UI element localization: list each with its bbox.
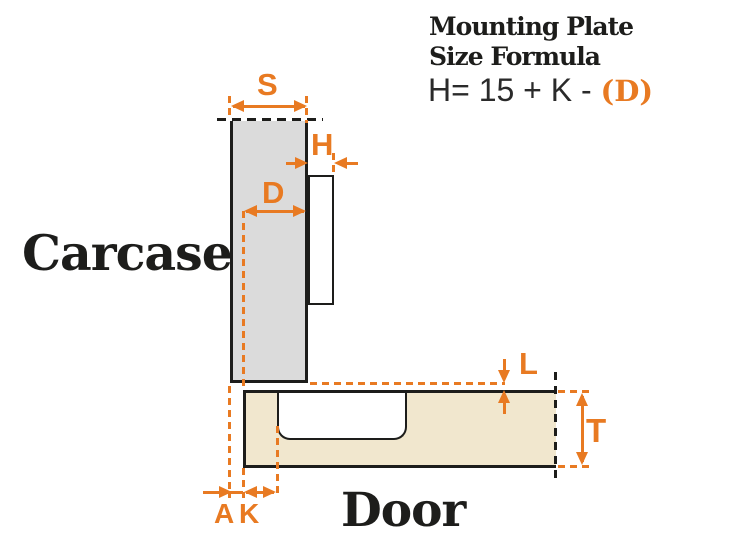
dim-label-d: D [262, 175, 284, 211]
s-arrowhead-right [294, 100, 307, 112]
l-arrowhead-down [498, 370, 510, 383]
ref-tick-door-bottom [558, 465, 591, 468]
formula: H= 15 + K - (D) [428, 72, 653, 109]
hinge-diagram-canvas: Mounting Plate Size Formula H= 15 + K - … [0, 0, 750, 558]
dim-label-h: H [311, 127, 333, 163]
dim-label-s: S [257, 67, 278, 103]
dim-label-l: L [519, 346, 538, 382]
h-arrowhead-left [295, 157, 308, 169]
dim-label-t: T [586, 412, 606, 450]
k-arrowhead-right [263, 486, 276, 498]
ref-line-carcase-left-bottom [228, 386, 231, 498]
t-arrowhead-up [576, 393, 588, 406]
dim-label-a: A [214, 498, 234, 530]
page-title-line2: Size Formula [429, 42, 633, 72]
d-arrowhead-left [244, 205, 257, 217]
h-arrow-line-right [345, 162, 358, 165]
door-break-line [554, 372, 557, 483]
k-arrowhead-left [244, 486, 257, 498]
door-label: Door [341, 483, 465, 538]
s-arrowhead-left [231, 100, 244, 112]
t-arrowhead-down [576, 452, 588, 465]
formula-text: H= 15 + K - [428, 72, 601, 108]
a-arrowhead [219, 486, 232, 498]
l-arrow-line-bottom [503, 401, 506, 414]
d-arrowhead-right [293, 205, 306, 217]
hinge-cup-cutout [277, 393, 407, 440]
page-title: Mounting Plate Size Formula [429, 12, 633, 72]
ref-line-door-face [242, 211, 245, 389]
ref-line-cup-edge [276, 426, 279, 498]
carcase-label: Carcase [22, 224, 232, 282]
page-title-line1: Mounting Plate [429, 12, 633, 42]
formula-highlight: (D) [601, 74, 654, 108]
ref-line-carcase-bottom [310, 382, 505, 385]
dim-label-k: K [239, 498, 259, 530]
mounting-plate [308, 175, 334, 305]
